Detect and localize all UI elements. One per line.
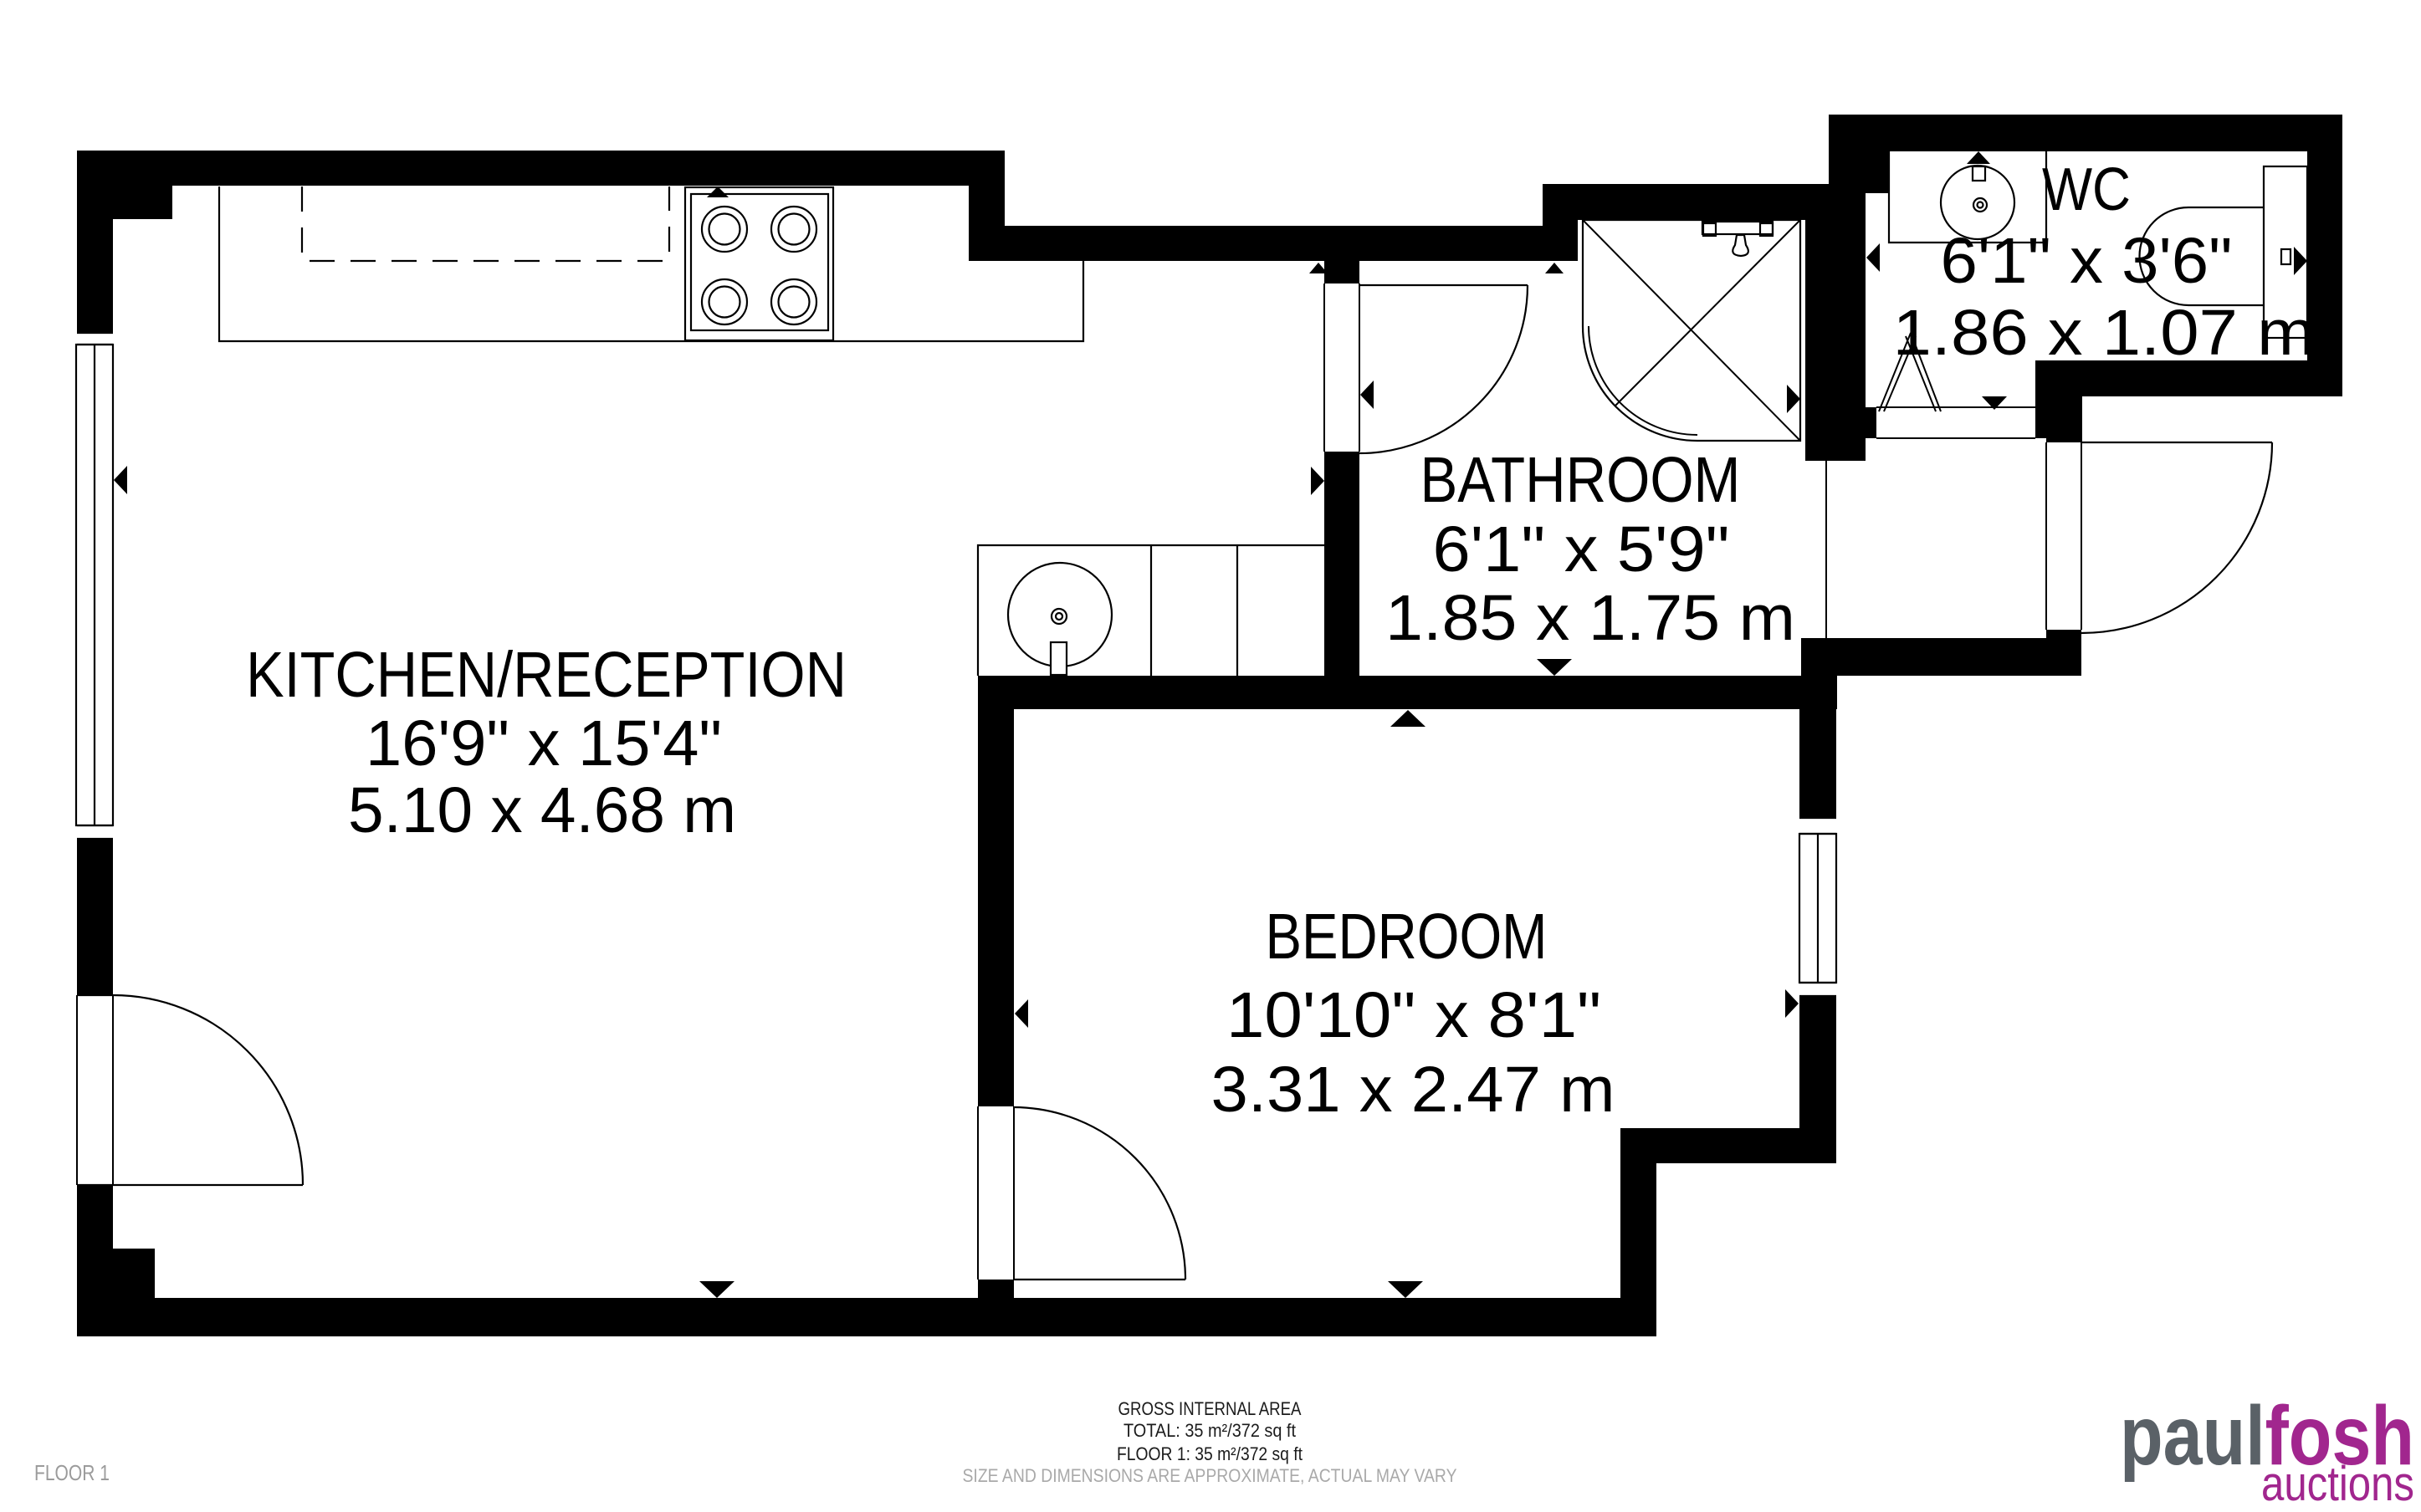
svg-text:10'10" x 8'1": 10'10" x 8'1" xyxy=(1226,979,1601,1051)
svg-text:1.86 x 1.07 m: 1.86 x 1.07 m xyxy=(1893,297,2316,369)
svg-text:FLOOR 1: FLOOR 1 xyxy=(34,1460,110,1485)
svg-text:auctions: auctions xyxy=(2261,1457,2414,1511)
svg-text:3.31 x 2.47 m: 3.31 x 2.47 m xyxy=(1211,1054,1615,1126)
svg-text:BEDROOM: BEDROOM xyxy=(1266,901,1548,973)
svg-text:KITCHEN/RECEPTION: KITCHEN/RECEPTION xyxy=(246,639,847,711)
svg-text:SIZE AND DIMENSIONS ARE APPROX: SIZE AND DIMENSIONS ARE APPROXIMATE, ACT… xyxy=(963,1465,1457,1486)
svg-text:FLOOR 1: 35 m²/372 sq ft: FLOOR 1: 35 m²/372 sq ft xyxy=(1117,1443,1303,1464)
svg-text:5.10 x 4.68 m: 5.10 x 4.68 m xyxy=(348,774,736,846)
svg-text:1.85 x 1.75 m: 1.85 x 1.75 m xyxy=(1385,582,1795,654)
svg-text:16'9" x 15'4": 16'9" x 15'4" xyxy=(366,707,722,779)
svg-text:TOTAL: 35 m²/372 sq ft: TOTAL: 35 m²/372 sq ft xyxy=(1123,1420,1296,1441)
svg-text:6'1" x 5'9": 6'1" x 5'9" xyxy=(1433,513,1730,585)
svg-text:BATHROOM: BATHROOM xyxy=(1420,444,1741,516)
svg-text:6'1" x 3'6": 6'1" x 3'6" xyxy=(1941,225,2233,297)
svg-text:GROSS INTERNAL AREA: GROSS INTERNAL AREA xyxy=(1118,1398,1302,1419)
svg-text:WC: WC xyxy=(2042,156,2131,223)
